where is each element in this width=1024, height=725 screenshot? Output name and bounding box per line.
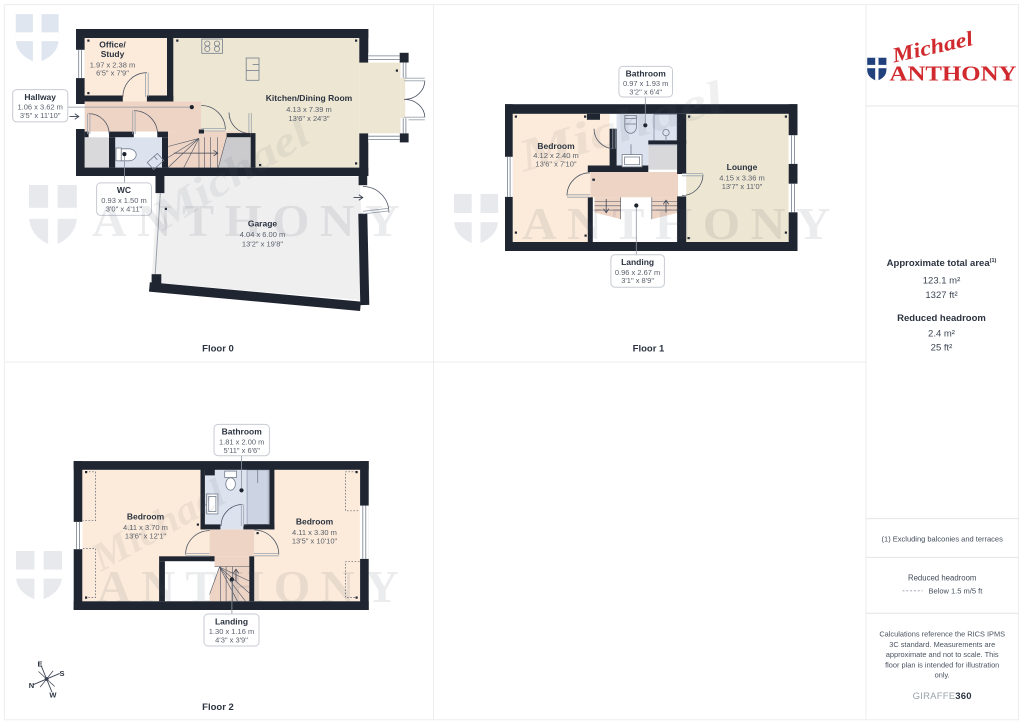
svg-text:1327 ft²: 1327 ft² <box>925 290 957 301</box>
svg-text:E: E <box>37 660 42 669</box>
svg-text:4'3" x 3'9": 4'3" x 3'9" <box>215 636 248 645</box>
svg-text:Lounge: Lounge <box>727 162 758 172</box>
svg-text:13'5" x 10'10": 13'5" x 10'10" <box>292 537 338 546</box>
svg-text:Calculations reference the RIC: Calculations reference the RICS IPMS <box>879 630 1005 639</box>
svg-text:approximate and not to scale.: approximate and not to scale. This <box>886 650 999 659</box>
svg-text:5'11" x 6'6": 5'11" x 6'6" <box>223 446 260 455</box>
svg-text:3'1" x 8'9": 3'1" x 8'9" <box>621 276 654 285</box>
svg-text:floor plan is intended for ill: floor plan is intended for illustration <box>885 660 999 669</box>
svg-text:GIRAFFE360: GIRAFFE360 <box>913 691 972 702</box>
svg-text:Floor 2: Floor 2 <box>202 702 234 713</box>
svg-text:Landing: Landing <box>215 616 248 626</box>
svg-text:Office/: Office/ <box>99 40 126 50</box>
svg-text:N: N <box>29 681 34 690</box>
svg-text:S: S <box>59 669 64 678</box>
svg-text:Floor 1: Floor 1 <box>633 344 665 355</box>
svg-text:123.1 m²: 123.1 m² <box>923 276 961 287</box>
svg-text:ANTHONY: ANTHONY <box>92 195 410 246</box>
svg-text:Kitchen/Dining Room: Kitchen/Dining Room <box>266 93 353 103</box>
svg-text:13'7" x 11'0": 13'7" x 11'0" <box>722 182 763 191</box>
svg-text:ANTHONY: ANTHONY <box>97 561 409 612</box>
svg-text:Bathroom: Bathroom <box>626 68 667 78</box>
svg-text:only.: only. <box>935 671 950 680</box>
svg-text:25 ft²: 25 ft² <box>931 343 953 354</box>
svg-text:6'5" x 7'9": 6'5" x 7'9" <box>96 69 129 78</box>
svg-text:3C standard. Measurements are: 3C standard. Measurements are <box>889 640 995 649</box>
svg-text:Bathroom: Bathroom <box>222 427 263 437</box>
svg-text:Approximate total area(1): Approximate total area(1) <box>887 258 997 269</box>
svg-text:3'5" x 11'10": 3'5" x 11'10" <box>20 111 61 120</box>
svg-text:ANTHONY: ANTHONY <box>890 62 1018 86</box>
svg-text:(1) Excluding balconies and te: (1) Excluding balconies and terraces <box>882 535 1004 544</box>
svg-text:2.4 m²: 2.4 m² <box>928 329 955 340</box>
svg-text:W: W <box>49 690 57 699</box>
svg-text:Study: Study <box>101 49 125 59</box>
svg-text:WC: WC <box>117 185 131 195</box>
svg-text:Below 1.5 m/5 ft: Below 1.5 m/5 ft <box>929 587 984 596</box>
svg-text:Hallway: Hallway <box>24 92 56 102</box>
svg-text:Reduced headroom: Reduced headroom <box>908 574 977 583</box>
svg-text:ANTHONY: ANTHONY <box>522 198 841 249</box>
svg-text:Bedroom: Bedroom <box>296 517 334 527</box>
svg-text:Landing: Landing <box>621 257 654 267</box>
svg-text:Reduced headroom: Reduced headroom <box>897 313 986 324</box>
svg-text:Floor 0: Floor 0 <box>202 344 234 355</box>
